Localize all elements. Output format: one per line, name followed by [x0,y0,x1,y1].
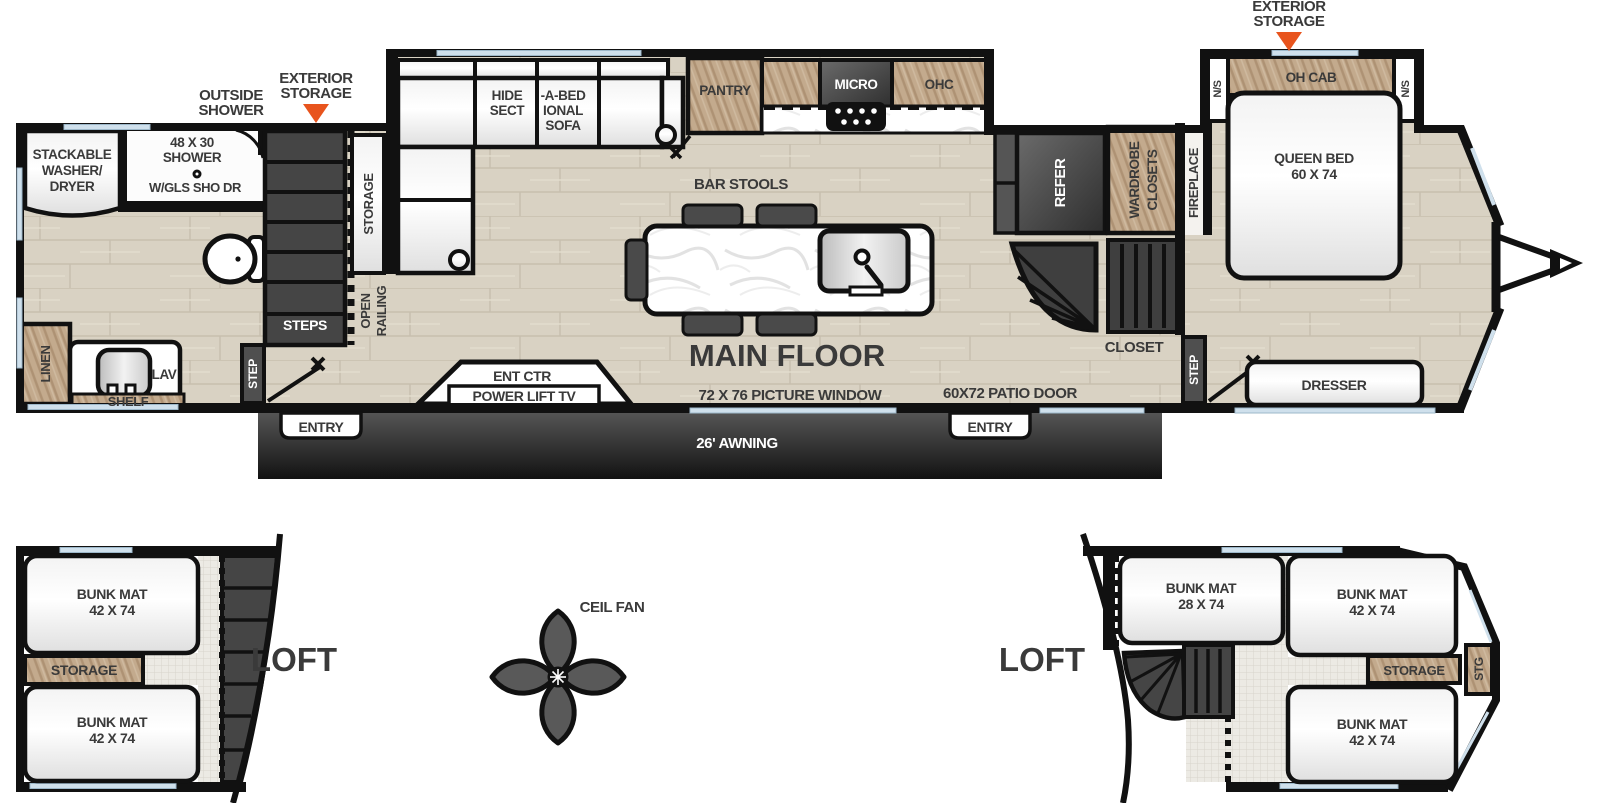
shower-label-2: SHOWER [163,150,222,165]
fireplace-label: FIREPLACE [1186,147,1201,218]
loft-left-bunk-bottom-label-2: 42 X 74 [89,730,135,746]
loft-right-spiral-stairs [1124,645,1233,718]
rv-floorplan: OUTSIDE SHOWER EXTERIOR STORAGE EXTERIOR… [0,0,1600,803]
outside-shower-label-2: SHOWER [198,102,264,119]
ns-right-label: N/S [1400,80,1412,97]
loft-left-carpet2 [143,653,198,685]
washer-label-1: STACKABLE [33,147,112,162]
exterior-storage-right-label-2: STORAGE [1253,13,1324,30]
wardrobe-closets [1108,127,1178,233]
toilet-icon [205,236,264,282]
loft-left: BUNK MAT 42 X 74 STORAGE BUNK MAT 42 X 7… [16,534,337,803]
loft-right-bunk-42-top-label-1: BUNK MAT [1337,586,1408,602]
micro-label: MICRO [835,77,878,92]
washer-label-2: WASHER/ [42,163,103,178]
entry-left-label: ENTRY [299,419,345,435]
sofa-label-2: SECT [490,103,526,118]
shower-label-3: W/GLS SHO DR [149,180,242,195]
patio-door-label: 60X72 PATIO DOOR [943,385,1077,402]
loft-left-title: LOFT [251,641,337,678]
sofa-label-5: SOFA [545,118,581,133]
exterior-storage-left-label-2: STORAGE [280,85,351,102]
queen-bed [1228,93,1400,278]
hitch-tongue [1499,237,1583,290]
exterior-storage-arrow-left [303,104,329,123]
lav-label: LAV [152,367,177,382]
ent-ctr-label: ENT CTR [493,368,551,384]
ns-left-label: N/S [1212,80,1224,97]
loft-left-bunk-top-label-2: 42 X 74 [89,602,135,618]
shower-wall-bottom [118,201,270,212]
sofa-label-1: HIDE [492,88,523,103]
floorplan-svg: OUTSIDE SHOWER EXTERIOR STORAGE EXTERIOR… [0,0,1600,803]
bar-stools-label: BAR STOOLS [694,176,788,193]
oh-cab-label: OH CAB [1286,70,1337,85]
sofa-pillow-chaise [450,251,468,269]
loft-right-bunk-42-bottom-label-2: 42 X 74 [1349,732,1395,748]
shower-label-1: 48 X 30 [170,135,214,150]
loft-right-stg-label: STG [1472,657,1486,681]
awning-label: 26' AWNING [696,435,778,452]
picture-window-label: 72 X 76 PICTURE WINDOW [699,387,883,404]
exterior-storage-steps [265,131,345,345]
ceil-fan-label: CEIL FAN [580,599,645,616]
loft-right-bunk-42-bottom-label-1: BUNK MAT [1337,716,1408,732]
loft-left-bunk-bottom-label-1: BUNK MAT [77,714,148,730]
sofa-label-3: -A-BED [541,88,586,103]
open-railing-label-2: RAILING [374,285,389,336]
main-floor-title: MAIN FLOOR [689,338,885,373]
loft-right-storage-label: STORAGE [1383,663,1445,678]
shower-head-dot [196,173,199,176]
sofa-pillow-right [657,126,675,144]
shower-wall-left [118,127,127,207]
sofa-storage-label: STORAGE [361,173,376,235]
loft-right-title: LOFT [999,641,1085,678]
sofa-label-4: IONAL [543,103,583,118]
closet-label: CLOSET [1105,339,1164,356]
dresser-label: DRESSER [1302,377,1367,393]
exterior-storage-arrow-right [1276,32,1302,51]
wardrobe-label-1: WARDROBE [1127,141,1142,218]
loft-right-bunk-42-top-label-2: 42 X 74 [1349,602,1395,618]
sofa-back-cushions [398,60,668,78]
stove-icon [826,102,886,131]
lav-sink-icon [98,350,150,396]
loft-right-bunk-28-label-2: 28 X 74 [1178,596,1224,612]
ohc-label: OHC [925,77,954,92]
loft-right-carpet3 [1288,657,1370,685]
ceiling-fan: CEIL FAN [492,599,644,743]
loft-right-carpet2 [1186,714,1288,782]
step-left-label: STEP [246,359,260,389]
washer-label-3: DRYER [50,179,95,194]
queen-bed-label-1: QUEEN BED [1274,150,1354,166]
loft-left-bunk-top-label-1: BUNK MAT [77,586,148,602]
linen-label: LINEN [38,345,53,382]
upper-cabinet-left [762,60,820,108]
sofa-seats [398,78,662,147]
step-right-label: STEP [1187,355,1201,385]
pantry-label: PANTRY [699,83,751,98]
loft-right-bunk-28-label-1: BUNK MAT [1166,580,1237,596]
island-sink-icon [820,231,908,295]
shelf-label: SHELF [108,394,149,409]
entry-right-label: ENTRY [968,419,1014,435]
cabinet-panels [995,133,1017,233]
loft-left-carpet [198,556,222,782]
loft-right: BUNK MAT 28 X 74 BUNK MAT 42 X 74 STORAG… [999,534,1496,803]
power-lift-tv-label: POWER LIFT TV [473,388,577,404]
main-unit: OUTSIDE SHOWER EXTERIOR STORAGE EXTERIOR… [16,0,1583,479]
queen-bed-label-2: 60 X 74 [1291,166,1337,182]
refer-label: REFER [1052,158,1069,207]
open-railing-label-1: OPEN [358,293,373,328]
wardrobe-label-2: CLOSETS [1145,149,1160,210]
steps-label: STEPS [283,317,327,333]
loft-left-storage-label: STORAGE [51,662,117,678]
